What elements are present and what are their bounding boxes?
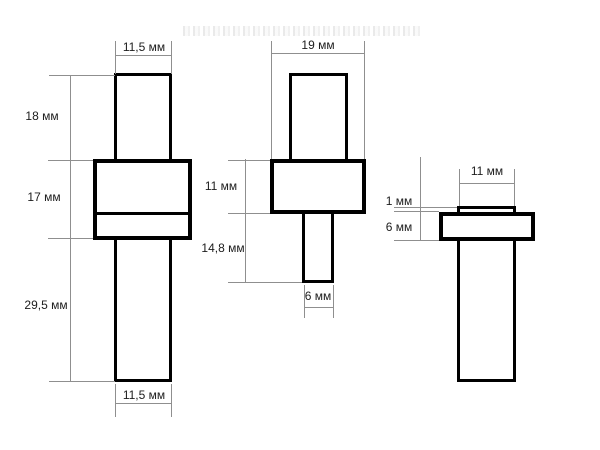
right-top-dim-extension-left	[459, 169, 460, 206]
middle-tick-flange-top	[228, 160, 270, 161]
middle-top-dim-extension-left	[271, 41, 272, 159]
right-top-dim-extension-right	[514, 169, 515, 206]
right-cap-height-label: 1 мм	[386, 195, 413, 207]
middle-top-width-label: 19 мм	[301, 39, 334, 51]
middle-stem-width-label: 6 мм	[305, 290, 332, 302]
left-top-width-label: 11,5 мм	[123, 41, 165, 53]
right-tick-flange-bottom	[394, 240, 439, 241]
left-top-dim-line	[115, 55, 172, 56]
left-bottom-dim-line	[115, 403, 172, 404]
left-flange-height-label: 17 мм	[27, 191, 60, 203]
left-tick-flange-top	[48, 160, 93, 161]
middle-top-dim-line	[271, 53, 365, 54]
left-vertical-dim-line	[70, 75, 71, 382]
middle-stem-height-label: 14,8 мм	[201, 242, 244, 254]
technical-drawing-canvas: 11,5 мм 18 мм 17 мм 29,5 мм 11,5 мм 19 м…	[0, 0, 600, 450]
middle-tick-flange-bottom	[228, 213, 270, 214]
left-part-flange-divider	[97, 212, 188, 215]
middle-part-lower-stem	[302, 214, 334, 283]
left-tick-top	[49, 75, 115, 76]
left-bottom-dim-extension-right	[171, 384, 172, 417]
left-bottom-width-label: 11,5 мм	[123, 389, 165, 401]
watermark-band	[183, 26, 420, 36]
middle-bottom-dim-line	[304, 307, 334, 308]
right-top-dim-line	[459, 183, 515, 184]
middle-tick-stem-bottom	[228, 282, 302, 283]
right-part-flange	[439, 212, 535, 241]
left-top-dim-extension-left	[115, 41, 116, 74]
right-vertical-dim-line	[420, 157, 421, 241]
middle-flange-height-label: 11 мм	[205, 180, 237, 192]
left-bottom-dim-extension-left	[115, 384, 116, 417]
middle-top-dim-extension-right	[364, 41, 365, 159]
right-cap-width-label: 11 мм	[471, 165, 503, 177]
left-top-dim-extension-right	[171, 41, 172, 74]
right-tick-flange-top	[394, 211, 439, 212]
middle-part-upper-stem	[289, 73, 348, 159]
left-tick-flange-bottom	[48, 238, 93, 239]
left-part-lower-stem	[114, 240, 172, 382]
right-part-stem	[457, 241, 516, 382]
middle-bottom-dim-extension-right	[333, 285, 334, 318]
left-part-flange	[93, 159, 192, 240]
middle-vertical-dim-line	[245, 159, 246, 283]
left-upper-stem-height-label: 18 мм	[25, 110, 58, 122]
left-lower-stem-height-label: 29,5 мм	[24, 299, 67, 311]
right-flange-height-label: 6 мм	[386, 221, 413, 233]
middle-part-flange	[270, 159, 366, 214]
left-part-upper-stem	[114, 73, 172, 161]
left-tick-bottom	[49, 381, 115, 382]
